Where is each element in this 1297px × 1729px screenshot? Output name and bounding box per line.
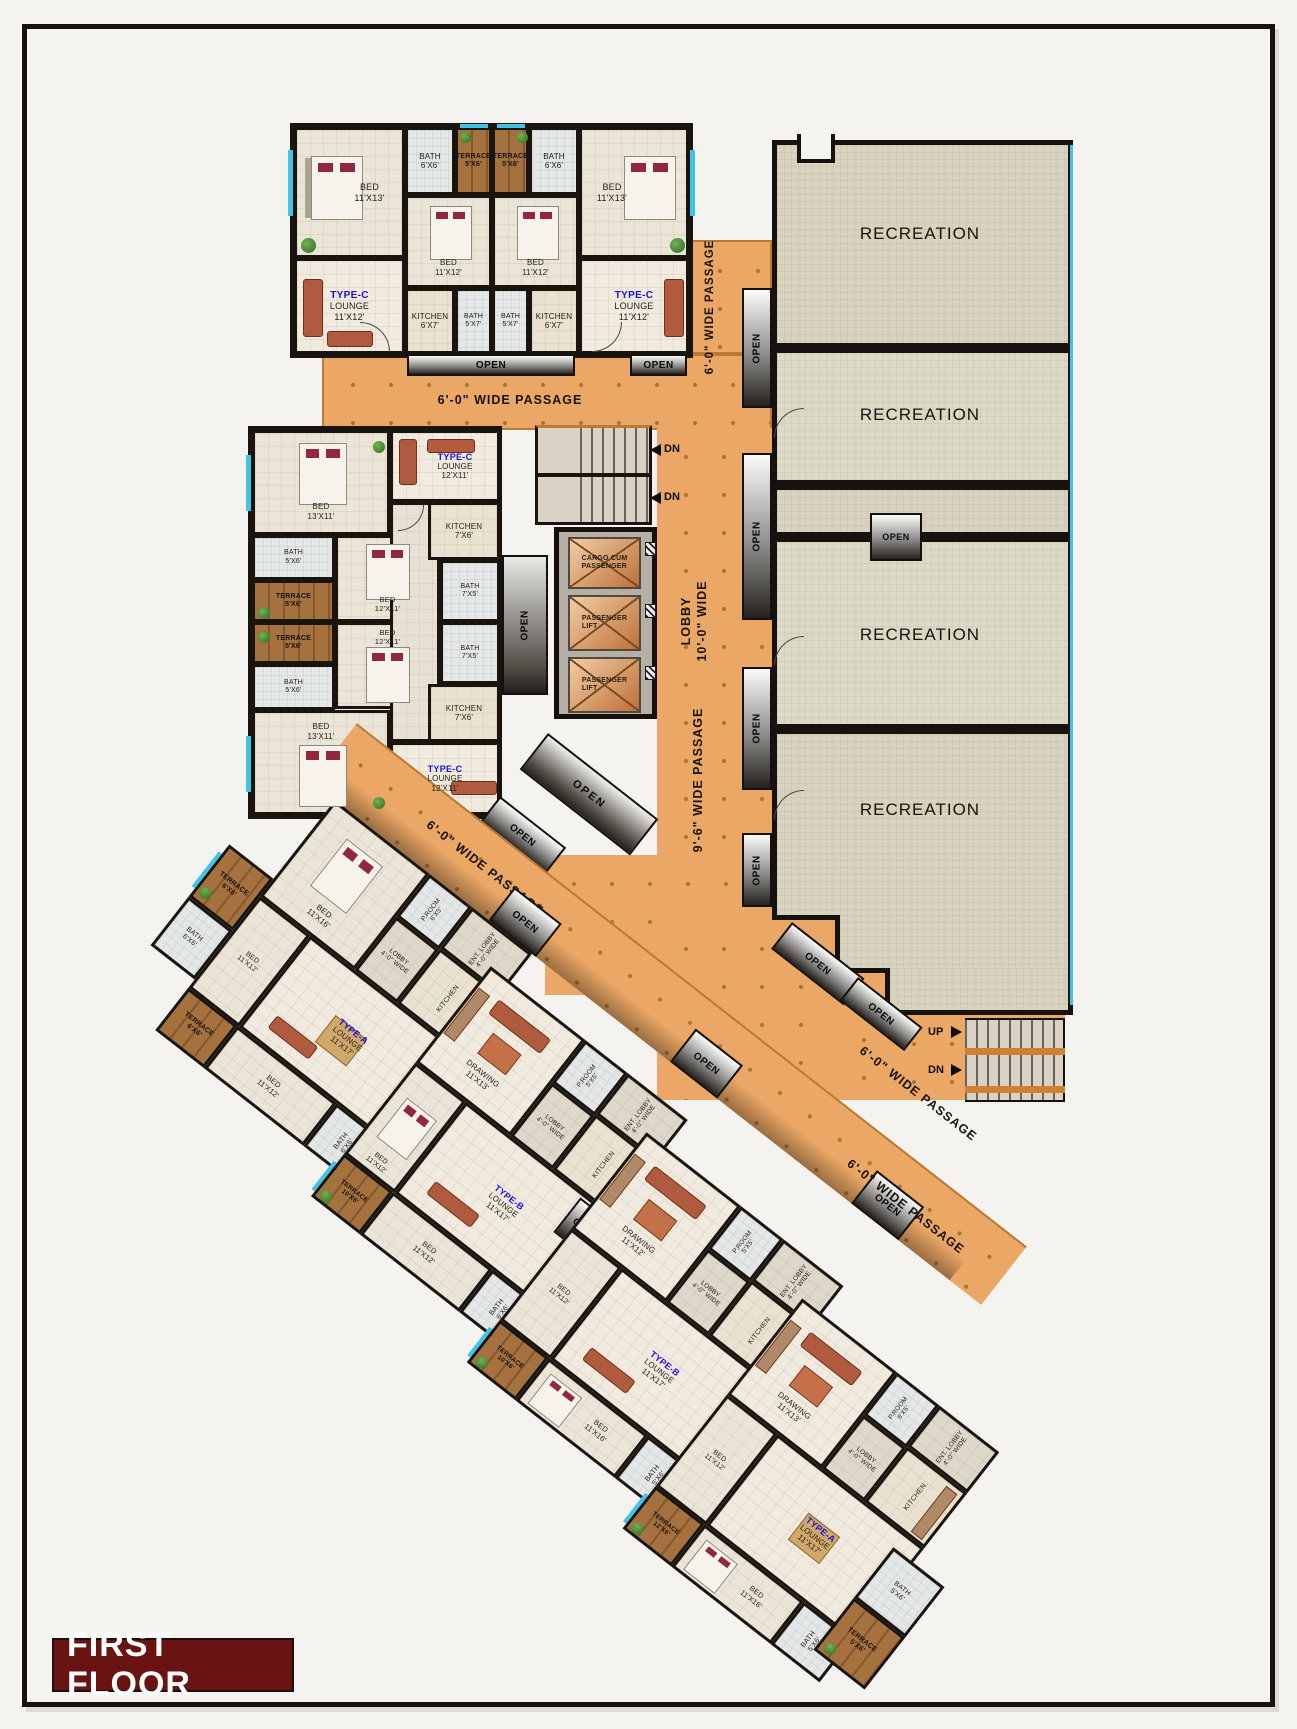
room-kitchen: KITCHEN 6'X7': [529, 288, 579, 354]
room-bath: BATH 7'X5': [440, 622, 500, 684]
room-bed: BED 13'X11': [252, 430, 390, 535]
room-bath: BATH 5'X6': [252, 664, 335, 710]
lobby-label: LOBBY 10'-0" WIDE: [678, 556, 712, 686]
lift-door-hatch: [645, 666, 656, 680]
room-kitchen: KITCHEN 6'X7': [405, 288, 455, 354]
room-lounge-type-c: TYPE-CLOUNGE 12'X11': [390, 430, 500, 502]
open-slot-4: OPEN: [742, 833, 772, 907]
open-strip-top-block: OPEN: [407, 354, 575, 376]
plant-icon: [301, 238, 316, 253]
lift-shaft: CARGO CUM PASSENGER PASSENGER LIFT PASSE…: [554, 527, 657, 719]
stair-dn-label: DN: [664, 491, 680, 503]
recreation-label-4: RECREATION: [820, 800, 1020, 820]
lift-door-hatch: [645, 604, 656, 618]
plant-icon: [373, 797, 385, 809]
dn-arrow-icon: [650, 444, 661, 456]
room-bath: BATH 6'X6': [529, 127, 579, 195]
room-kitchen: KITCHEN 7'X6': [428, 684, 500, 742]
bed-icon: [366, 544, 410, 600]
recreation-room-1: [772, 140, 1073, 348]
plant-icon: [670, 238, 685, 253]
sofa-icon: [327, 331, 373, 347]
stair-up-label: UP: [928, 1026, 943, 1038]
up-arrow-icon: [951, 1026, 962, 1038]
room-bath: BATH 7'X5': [440, 560, 500, 622]
recreation-band: [772, 485, 1073, 537]
plant-icon: [473, 1354, 490, 1371]
recreation-room-4-ext2: [885, 968, 1073, 1015]
plant-icon: [517, 132, 528, 143]
room-bath: BATH 5'X6': [252, 535, 335, 580]
room-terrace: TERRACE 5'X6': [252, 580, 335, 622]
open-slot-1: OPEN: [742, 288, 772, 408]
sofa-icon: [267, 1015, 318, 1060]
plant-icon: [318, 1188, 335, 1205]
open-strip-core: OPEN: [502, 555, 548, 695]
bed-icon: [624, 156, 676, 220]
room-kitchen: KITCHEN 7'X6': [428, 502, 500, 560]
passage-9-6-label: 9'-6" WIDE PASSAGE: [690, 700, 706, 860]
room-terrace: TERRACE 5'X6': [252, 622, 335, 664]
plant-icon: [822, 1641, 839, 1658]
recreation-label-1: RECREATION: [820, 224, 1020, 244]
stair-divider: [538, 473, 649, 477]
room-bath: BATH 5'X7': [492, 288, 529, 354]
recreation-window-strip: [1070, 145, 1073, 1005]
room-bed: BED 11'X12': [405, 195, 492, 288]
bed-icon: [366, 647, 410, 703]
window-strip: [460, 124, 488, 128]
cargo-lift: CARGO CUM PASSENGER: [568, 537, 641, 589]
window-strip: [497, 124, 525, 128]
dn-arrow-icon: [951, 1064, 962, 1076]
room-bed: BED 11'X13': [294, 127, 405, 258]
open-slot-2: OPEN: [742, 453, 772, 620]
window-strip: [690, 150, 695, 216]
stair-dn-label: DN: [928, 1064, 944, 1076]
window-strip: [246, 736, 251, 792]
plant-icon: [373, 441, 385, 453]
plant-icon: [258, 631, 270, 643]
sofa-icon: [426, 1181, 480, 1228]
recreation-room-4: [772, 729, 1073, 920]
stairwell: [535, 425, 652, 525]
open-slot-3: OPEN: [742, 667, 772, 790]
room-lounge-type-c: TYPE-CLOUNGE 11'X12': [294, 258, 405, 354]
room-bath: BATH 6'X6': [405, 127, 455, 195]
plant-icon: [197, 884, 214, 901]
sofa-icon: [582, 1347, 636, 1394]
recreation-notch: [797, 134, 835, 163]
passage-vertical-label: 6'-0" WIDE PASSAGE: [703, 247, 717, 367]
lift-door-hatch: [645, 542, 656, 556]
plant-icon: [629, 1520, 646, 1537]
dn-arrow-icon: [650, 492, 661, 504]
page-title: FIRST FLOOR: [52, 1638, 294, 1692]
room-terrace: TERRACE 5'X6': [492, 127, 529, 195]
plant-icon: [258, 607, 270, 619]
stair-bar: [965, 1086, 1065, 1093]
passenger-lift-1: PASSENGER LIFT: [568, 595, 641, 651]
stair-dn-label: DN: [664, 443, 680, 455]
bed-icon: [299, 745, 347, 807]
window-strip: [246, 455, 251, 511]
passenger-lift-2: PASSENGER LIFT: [568, 657, 641, 713]
room-bed: BED 11'X12': [492, 195, 579, 288]
open-strip-top-block-2: OPEN: [630, 354, 687, 376]
bed-icon: [517, 206, 559, 260]
recreation-label-3: RECREATION: [820, 625, 1020, 645]
sofa-icon: [303, 279, 323, 337]
sofa-icon: [399, 439, 417, 485]
passage-top-label: 6'-0" WIDE PASSAGE: [400, 391, 620, 407]
sofa-icon: [664, 279, 684, 337]
recreation-room-4-ext1: [835, 915, 1073, 973]
bed-icon: [430, 206, 472, 260]
room-bath: BATH 5'X7': [455, 288, 492, 354]
bed-icon: [299, 443, 347, 505]
room-bed: BED 11'X13': [579, 127, 689, 258]
room-terrace: TERRACE 5'X6': [455, 127, 492, 195]
open-box-mid: OPEN: [870, 513, 922, 561]
window-strip: [288, 150, 293, 216]
floor-plan-canvas: 6'-0" WIDE PASSAGE 6'-0" WIDE PASSAGE LO…: [0, 0, 1297, 1729]
plant-icon: [460, 132, 471, 143]
stair-bar: [965, 1048, 1065, 1055]
recreation-label-2: RECREATION: [820, 405, 1020, 425]
